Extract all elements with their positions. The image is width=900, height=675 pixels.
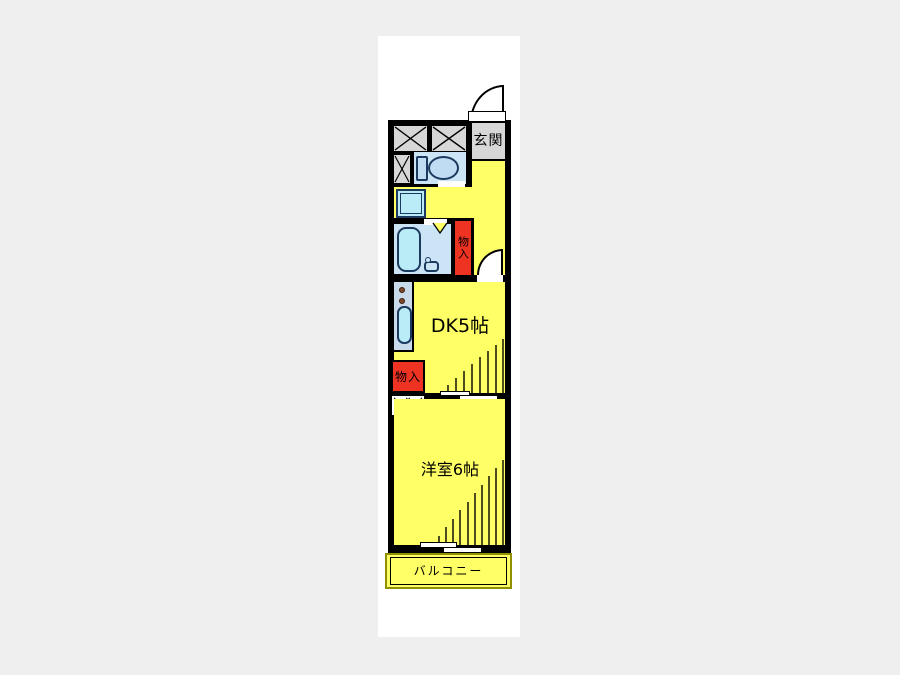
balcony-inner-rail: バルコニー bbox=[390, 557, 507, 585]
entrance-area: 玄関 bbox=[472, 123, 505, 159]
storage-lower-label: 物入 bbox=[395, 371, 421, 383]
washbasin bbox=[396, 189, 426, 218]
entrance-door-leaf bbox=[502, 85, 504, 113]
balcony: バルコニー bbox=[385, 553, 512, 589]
x-mark-icon bbox=[394, 155, 410, 183]
dk-size-text: DK5帖 bbox=[431, 317, 489, 336]
storage-upper-label: 物入 bbox=[458, 236, 469, 260]
dining-kitchen-label: DK5帖 bbox=[415, 314, 505, 338]
entrance-label: 玄関 bbox=[474, 134, 504, 148]
shaft-box bbox=[394, 126, 427, 151]
toilet-bowl-icon bbox=[428, 156, 459, 180]
storage-closet-upper: 物入 bbox=[453, 219, 473, 277]
door-swing-fan-lines bbox=[437, 459, 505, 545]
shaft-box bbox=[432, 126, 466, 151]
dk-door-opening bbox=[477, 275, 503, 282]
dk-door-leaf bbox=[501, 249, 503, 275]
toilet-tank bbox=[416, 156, 428, 181]
kitchen-sink-icon bbox=[397, 306, 412, 344]
stove-burner-icon bbox=[399, 287, 405, 293]
x-mark-icon bbox=[432, 126, 466, 151]
bathtub-icon bbox=[397, 227, 421, 272]
floor-plan-page: 玄関 物入 DK5帖 物入 bbox=[0, 0, 900, 675]
shaft-box bbox=[394, 155, 410, 183]
storage-closet-lower: 物入 bbox=[391, 360, 425, 393]
x-mark-icon bbox=[394, 126, 427, 151]
stove-burner-icon bbox=[399, 298, 405, 304]
bath-fixture-knob bbox=[425, 257, 431, 263]
door-swing-fan-lines bbox=[446, 338, 505, 393]
bath-folding-door-icon bbox=[432, 222, 448, 234]
balcony-label: バルコニー bbox=[414, 565, 484, 577]
entrance-door-sill bbox=[468, 111, 506, 122]
hallway bbox=[472, 161, 505, 187]
